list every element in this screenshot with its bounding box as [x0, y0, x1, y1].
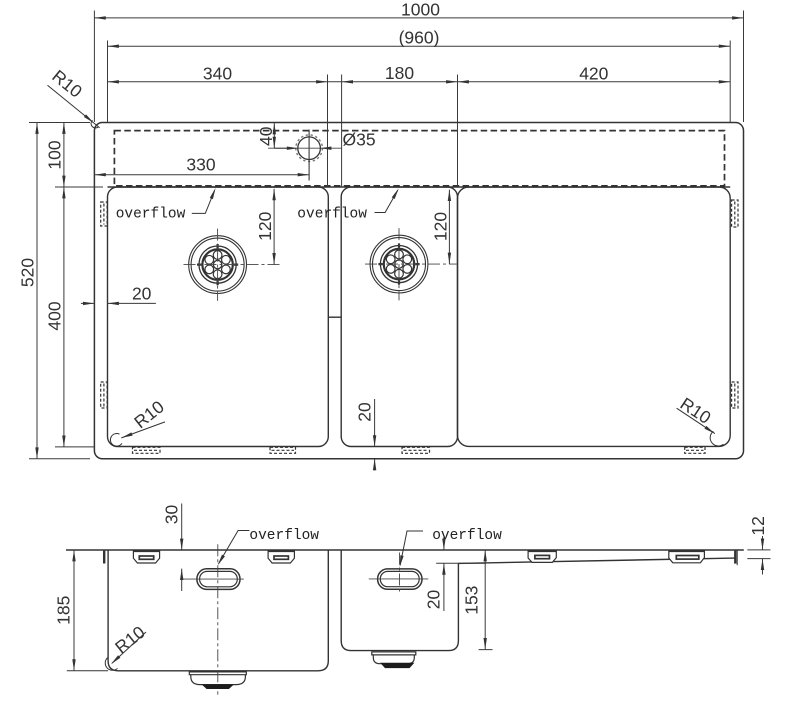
svg-text:Ø35: Ø35 [343, 130, 376, 150]
svg-text:R10: R10 [48, 66, 86, 102]
svg-text:overflow: overflow [116, 206, 186, 222]
svg-text:R10: R10 [677, 393, 715, 428]
svg-text:185: 185 [54, 596, 74, 625]
svg-text:400: 400 [45, 301, 65, 330]
svg-text:330: 330 [186, 155, 215, 175]
svg-text:420: 420 [579, 63, 608, 83]
svg-text:153: 153 [461, 586, 481, 615]
svg-text:40: 40 [256, 126, 276, 146]
svg-text:340: 340 [203, 63, 232, 83]
svg-text:100: 100 [45, 140, 65, 169]
svg-text:(960): (960) [399, 28, 440, 48]
svg-text:120: 120 [255, 211, 275, 240]
svg-text:20: 20 [355, 402, 375, 422]
svg-text:overflow: overflow [432, 528, 502, 544]
svg-text:520: 520 [18, 258, 38, 287]
svg-text:20: 20 [424, 590, 444, 610]
svg-text:12: 12 [748, 516, 768, 535]
svg-text:R10: R10 [111, 622, 149, 658]
svg-text:overflow: overflow [249, 528, 319, 544]
svg-text:1000: 1000 [401, 0, 440, 20]
svg-text:120: 120 [430, 212, 450, 241]
svg-text:30: 30 [162, 505, 182, 525]
svg-text:R10: R10 [130, 396, 168, 432]
svg-text:180: 180 [385, 63, 414, 83]
svg-text:20: 20 [132, 284, 152, 304]
svg-text:overflow: overflow [297, 206, 367, 222]
